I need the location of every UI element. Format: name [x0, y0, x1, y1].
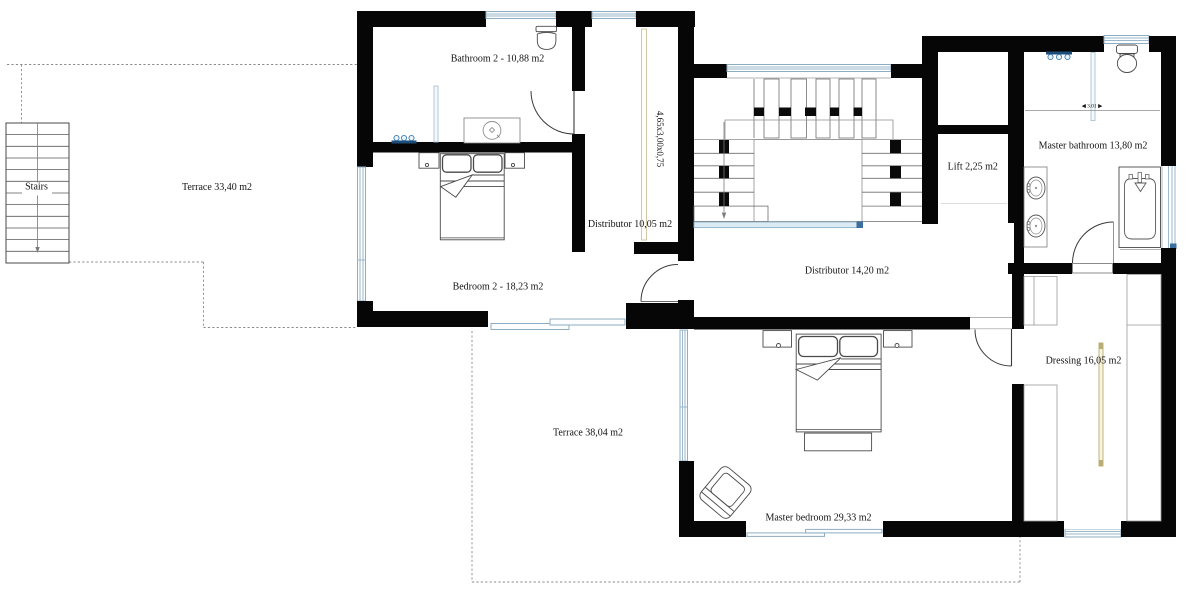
svg-text:Stairs: Stairs	[25, 182, 48, 193]
svg-text:Master bedroom 29,33 m2: Master bedroom 29,33 m2	[765, 513, 871, 524]
svg-text:Dressing 16,05 m2: Dressing 16,05 m2	[1046, 356, 1122, 367]
svg-text:Bathroom 2 - 10,88 m2: Bathroom 2 - 10,88 m2	[451, 54, 545, 65]
svg-text:4,65x3,00x0,75: 4,65x3,00x0,75	[655, 111, 665, 168]
svg-text:Distributor 10,05 m2: Distributor 10,05 m2	[588, 219, 672, 230]
svg-text:Distributor 14,20 m2: Distributor 14,20 m2	[805, 266, 889, 277]
svg-text:◀ 3.01 ▶: ◀ 3.01 ▶	[1082, 104, 1104, 110]
svg-text:Bedroom 2 - 18,23 m2: Bedroom 2 - 18,23 m2	[453, 282, 544, 293]
svg-text:Lift 2,25 m2: Lift 2,25 m2	[948, 162, 998, 173]
svg-text:Master bathroom 13,80 m2: Master bathroom 13,80 m2	[1039, 141, 1148, 152]
svg-text:Terrace 38,04 m2: Terrace 38,04 m2	[553, 428, 623, 439]
svg-text:Terrace 33,40 m2: Terrace 33,40 m2	[182, 182, 252, 193]
